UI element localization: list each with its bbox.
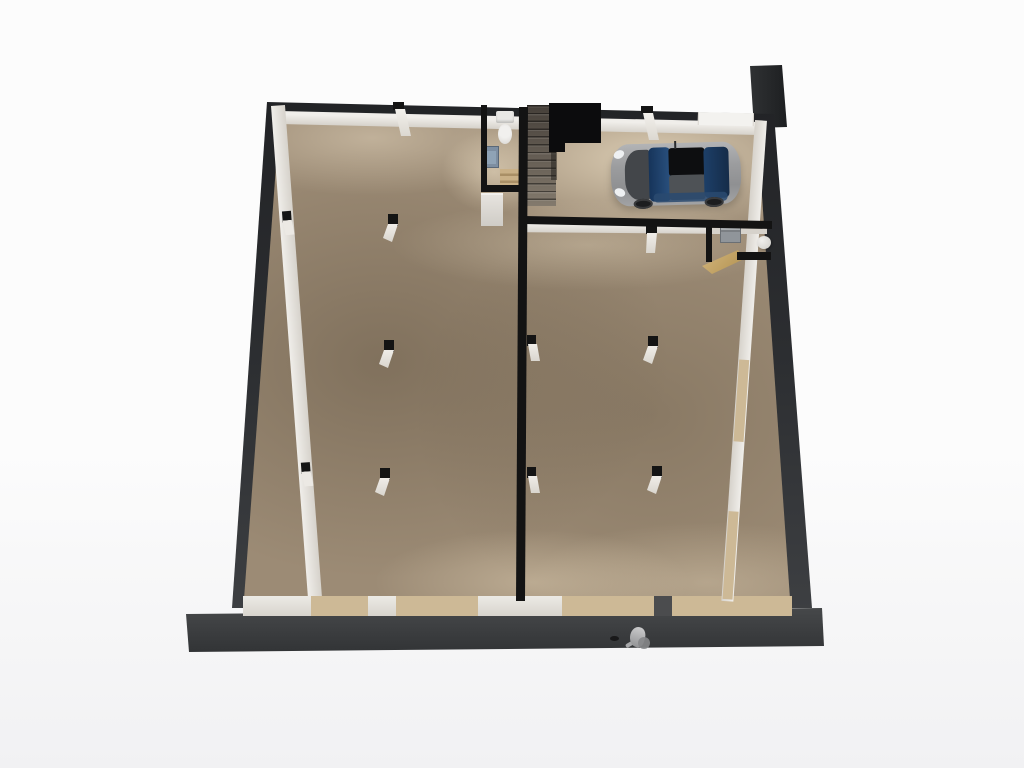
- garage-wall-column: [641, 106, 651, 138]
- closet-bottom-wall: [737, 252, 771, 260]
- column: [652, 466, 662, 498]
- column-cap: [393, 102, 404, 110]
- floorplan-render: [0, 0, 1024, 768]
- figure-part: [638, 637, 650, 649]
- car: [610, 139, 742, 210]
- toilet-bowl: [498, 124, 512, 144]
- bottom-wall-pillar: [654, 596, 672, 616]
- car-sunroof: [668, 147, 705, 176]
- column-cap: [646, 226, 657, 234]
- wc-left-wall: [481, 105, 487, 191]
- column: [388, 214, 398, 246]
- left-wall-column-body-2: [302, 471, 314, 487]
- bottom-wall-segment: [368, 596, 396, 616]
- car-rear-window: [703, 147, 729, 199]
- wc-bottom-wall: [481, 185, 527, 192]
- small-figure: [608, 627, 656, 653]
- stair-shadow: [551, 152, 557, 180]
- column-cap: [641, 106, 653, 113]
- garage-door: [698, 112, 754, 126]
- wash-panel-basin: [486, 151, 496, 164]
- under-stair-cabinet: [481, 193, 503, 226]
- divider-column: [527, 467, 536, 499]
- car-antenna: [674, 141, 676, 149]
- figure-shadow-dot: [610, 636, 619, 641]
- toilet-tank: [496, 111, 514, 123]
- left-wall-column-body-1: [283, 220, 295, 236]
- closet-left-wall: [706, 220, 712, 262]
- column: [380, 468, 390, 500]
- divider-column: [527, 335, 536, 367]
- column: [648, 336, 658, 368]
- water-heater: [757, 236, 771, 249]
- utility-panel: [720, 226, 741, 243]
- top-wall-column: [393, 102, 403, 134]
- right-hall-top-column: [646, 226, 656, 258]
- bottom-wall-segment: [243, 596, 311, 616]
- column: [384, 340, 394, 372]
